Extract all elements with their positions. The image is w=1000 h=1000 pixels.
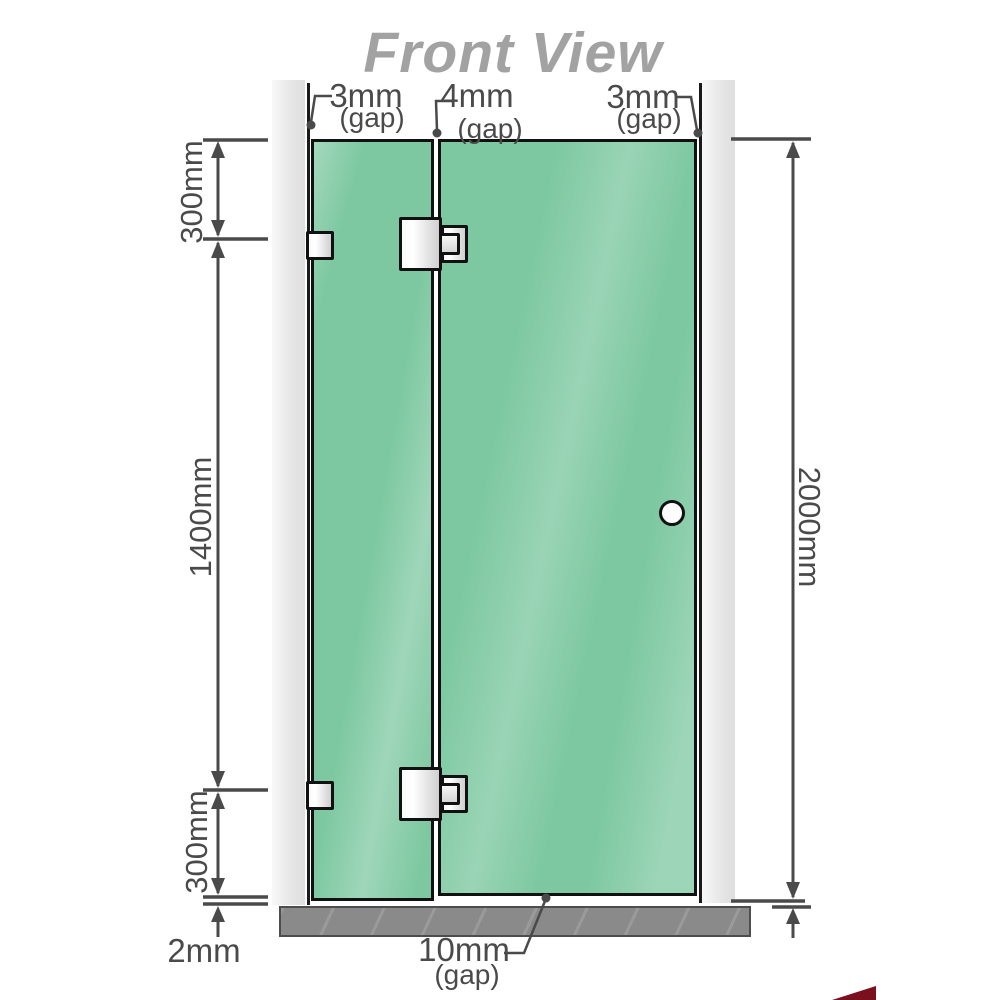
dim-label-floor-gap: 2mm	[144, 934, 264, 967]
gap-label-top-middle-suffix: (gap)	[430, 115, 550, 143]
gap-label-top-right-suffix: (gap)	[589, 105, 709, 133]
dim-label-left-top: 300mm	[174, 132, 208, 252]
dimension-lines	[218, 143, 793, 938]
leader-dots	[307, 121, 703, 903]
gap-label-top-left-suffix: (gap)	[312, 104, 432, 132]
dimension-arrowheads	[211, 141, 800, 924]
dim-label-left-middle: 1400mm	[183, 447, 217, 587]
dim-label-right-height: 2000mm	[793, 452, 827, 602]
dim-label-left-bottom: 300mm	[179, 782, 213, 902]
dimension-lines-overlay	[0, 0, 1000, 1000]
leader-lines	[311, 96, 697, 953]
dim-label-door-gap-suffix: (gap)	[407, 961, 527, 989]
front-view-diagram: Front View	[0, 0, 1000, 1000]
dimension-ticks	[203, 139, 811, 907]
gap-label-top-middle-value: 4mm	[417, 79, 537, 112]
